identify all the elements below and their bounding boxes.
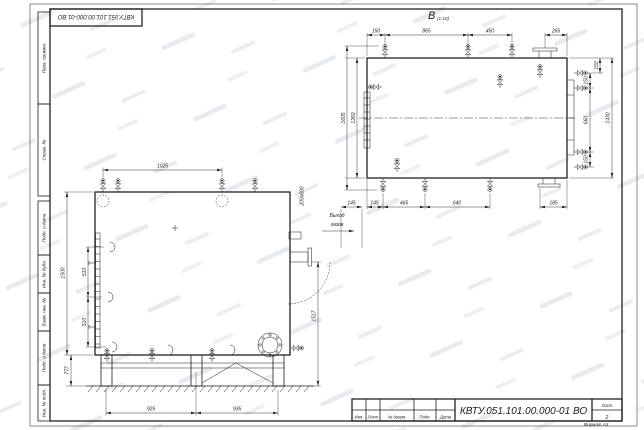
dim-1025: 1025: [157, 164, 168, 170]
dim-1260: 1260: [351, 112, 357, 123]
margin-cell-label: Взам. инв. №: [42, 298, 47, 326]
dim-660: 660: [584, 116, 590, 125]
dim-145-bottom: 145: [370, 201, 379, 207]
sheet-label: Лист: [601, 403, 613, 408]
drawing-sheet: КВТУ.051.101.00.000-01 ВО Перв. примен. …: [0, 0, 644, 430]
margin-cell-label: Инв. № дубл.: [42, 260, 47, 288]
outlet-size-label: 200х600: [300, 186, 306, 206]
dim-450: 450: [486, 29, 495, 35]
dim-510a: 510: [82, 268, 88, 277]
margin-cell-label: Перв. примен.: [42, 43, 47, 74]
titleblock-col-doc: № докум.: [388, 415, 406, 420]
margin-cell-label: Инв. № подл.: [42, 389, 47, 418]
dim-1605: 1605: [341, 112, 347, 123]
dim-935: 935: [233, 407, 242, 413]
dim-865: 865: [422, 29, 431, 35]
format-note: Формат А3: [584, 422, 609, 427]
dim-150-right-2: 150: [584, 155, 590, 164]
dim-150-right-1: 150: [584, 76, 590, 85]
dim-1430: 1430: [606, 112, 612, 123]
document-designation: КВТУ.051.101.00.000-01 ВО: [460, 406, 588, 417]
view-label: В: [428, 10, 435, 22]
watermark-texture: [0, 0, 644, 430]
dim-777: 777: [65, 366, 71, 375]
dim-640: 640: [453, 201, 462, 207]
titleblock-col-date: Дата: [439, 415, 452, 420]
dim-150-top: 150: [372, 29, 381, 35]
dim-510b: 510: [82, 318, 88, 327]
margin-cell-label: Подп. и дата: [42, 213, 47, 242]
view-label-scale: (1:10): [437, 16, 449, 21]
dim-265: 265: [551, 29, 561, 35]
sheet-number: 2: [605, 415, 609, 421]
engineering-drawing: КВТУ.051.101.00.000-01 ВО Перв. примен. …: [0, 0, 644, 430]
dim-145-outlet: 145: [347, 201, 356, 207]
dim-465: 465: [400, 201, 409, 207]
titleblock-col-list: Лист: [367, 415, 379, 420]
dim-150-right-top: 150: [594, 61, 600, 70]
margin-cell-label: Справ. №: [42, 140, 47, 161]
titleblock-col-sign: Подп.: [419, 415, 430, 420]
gas-outlet-note-2: газов: [331, 222, 344, 228]
top-stamp-text: КВТУ.051.101.00.000-01 ВО: [57, 13, 134, 19]
gas-outlet-note-1: Выход: [329, 213, 344, 219]
titleblock-col-izm: Изм.: [355, 415, 364, 420]
dim-925: 925: [147, 407, 156, 413]
dim-1517: 1517: [312, 310, 318, 321]
margin-cell-label: Подп. и дата: [42, 343, 47, 372]
dim-1500: 1500: [61, 267, 67, 278]
dim-185: 185: [549, 201, 558, 207]
